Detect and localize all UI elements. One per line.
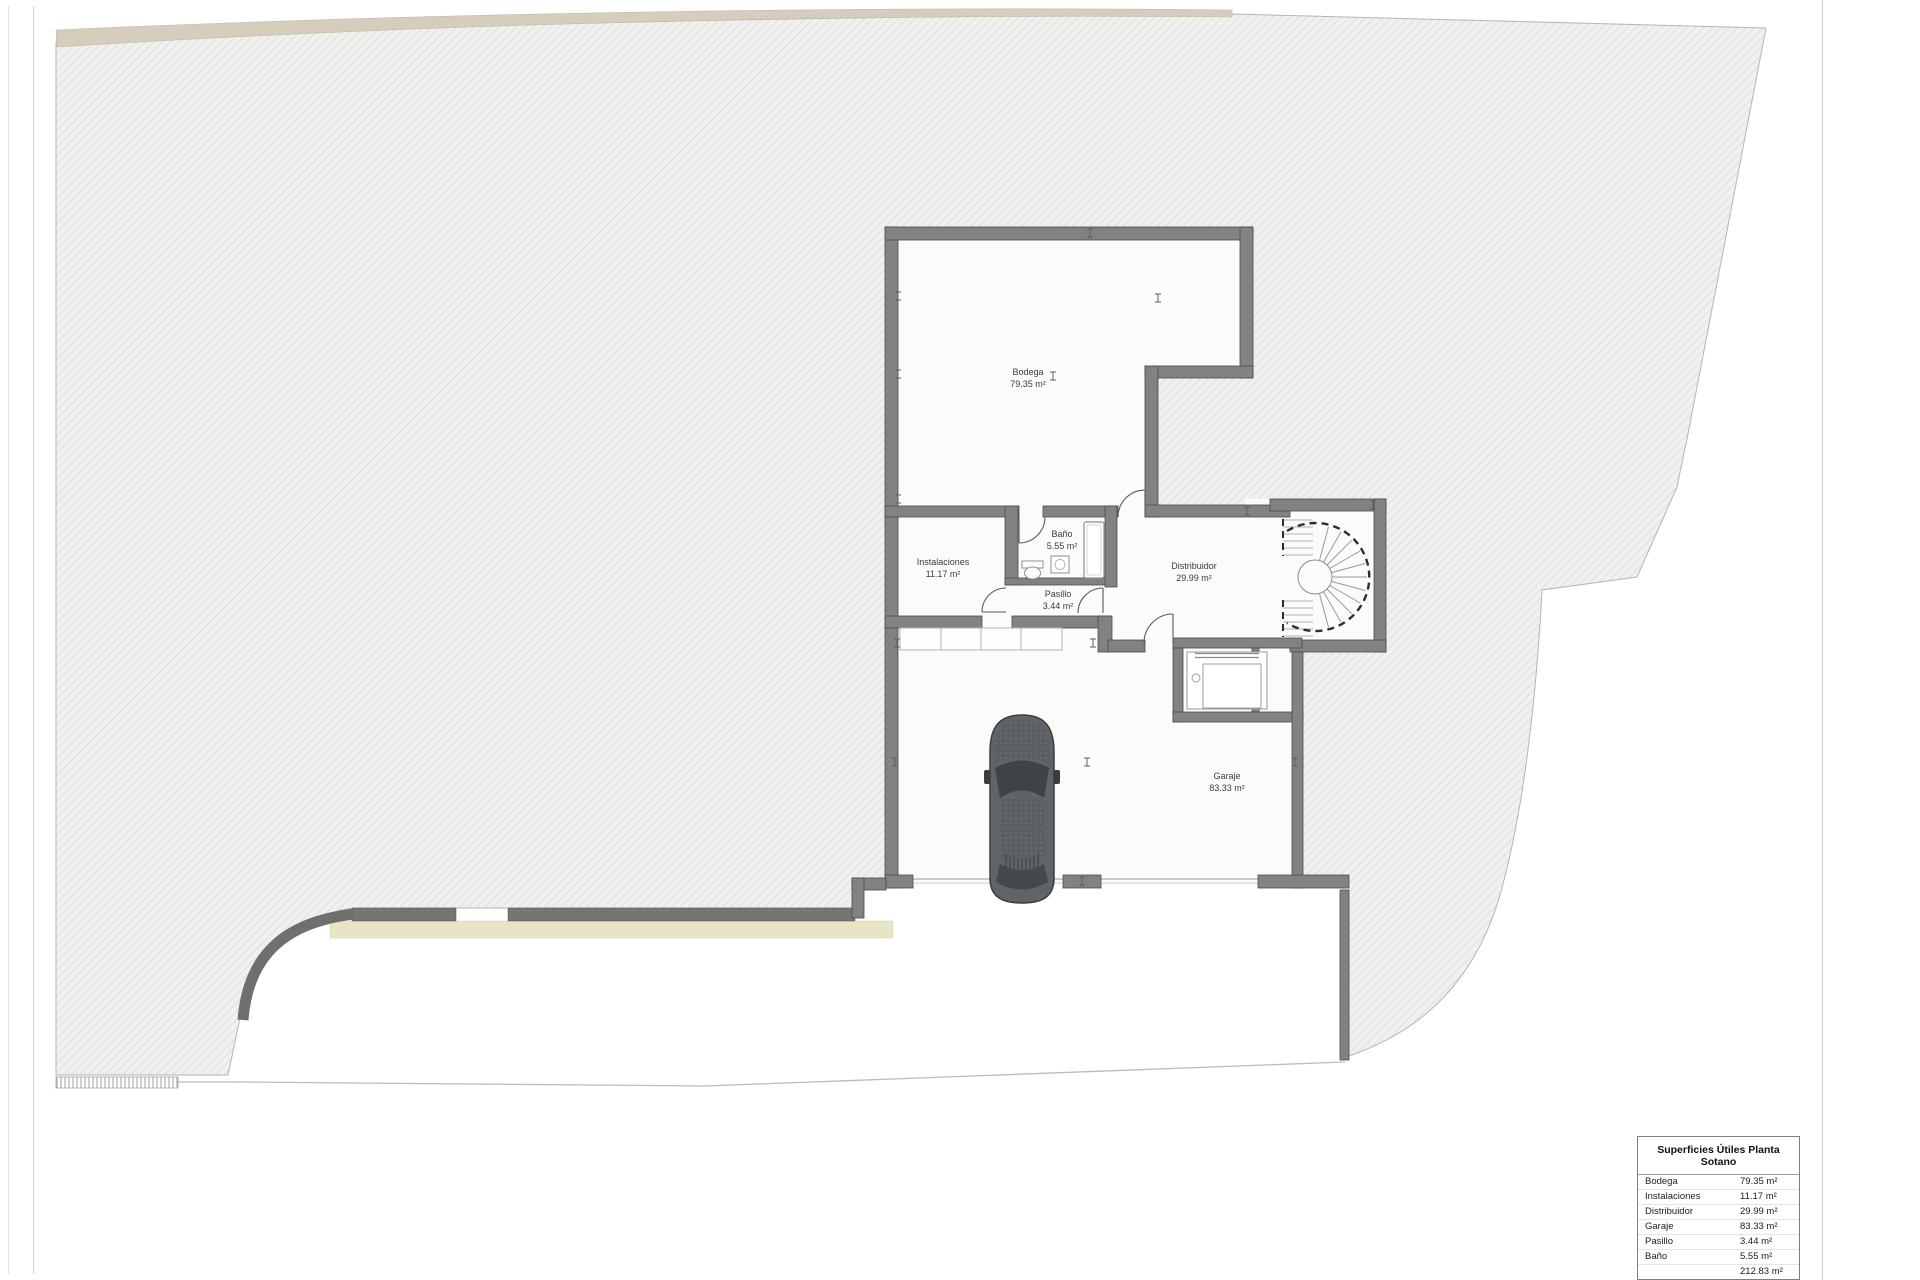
toilet xyxy=(1022,561,1043,579)
row-label: Bodega xyxy=(1638,1175,1740,1189)
row-value: 11.17 m² xyxy=(1740,1190,1799,1204)
row-label: Garaje xyxy=(1638,1220,1740,1234)
surface-areas-table: Superficies Útiles Planta Sotano Bodega … xyxy=(1637,1136,1800,1280)
row-label: Baño xyxy=(1638,1250,1740,1264)
row-value: 83.33 m² xyxy=(1740,1220,1799,1234)
row-value: 5.55 m² xyxy=(1740,1250,1799,1264)
table-total-row: . 212.83 m² xyxy=(1638,1265,1799,1279)
drawing-sheet: Bodega 79.35 m² Instalaciones 11.17 m² B… xyxy=(0,0,1920,1280)
sink xyxy=(1051,556,1069,573)
page-frame-line xyxy=(33,6,34,1274)
table-row: Distribuidor 29.99 m² xyxy=(1638,1205,1799,1220)
shower xyxy=(1084,522,1104,578)
garage-counter xyxy=(900,628,1062,650)
row-label: Distribuidor xyxy=(1638,1205,1740,1219)
driveway-apron xyxy=(861,886,1341,1062)
table-row: Bodega 79.35 m² xyxy=(1638,1175,1799,1190)
floor-plan-canvas xyxy=(0,0,1920,1280)
page-frame-line xyxy=(8,6,9,1274)
row-value: 29.99 m² xyxy=(1740,1205,1799,1219)
car-icon xyxy=(984,715,1060,903)
row-value: 79.35 m² xyxy=(1740,1175,1799,1189)
table-row: Instalaciones 11.17 m² xyxy=(1638,1190,1799,1205)
table-row: Pasillo 3.44 m² xyxy=(1638,1235,1799,1250)
table-row: Baño 5.55 m² xyxy=(1638,1250,1799,1265)
table-title: Superficies Útiles Planta Sotano xyxy=(1638,1137,1799,1175)
table-row: Garaje 83.33 m² xyxy=(1638,1220,1799,1235)
page-frame-line xyxy=(1822,0,1823,1280)
comb-hatch-marks xyxy=(56,1077,178,1088)
row-label: Instalaciones xyxy=(1638,1190,1740,1204)
row-label: Pasillo xyxy=(1638,1235,1740,1249)
retaining-wall-bands xyxy=(352,908,855,921)
total-value: 212.83 m² xyxy=(1740,1265,1799,1279)
planter-band xyxy=(330,921,893,938)
road-edge-line xyxy=(178,1062,1345,1086)
elevator xyxy=(1187,652,1267,709)
row-value: 3.44 m² xyxy=(1740,1235,1799,1249)
